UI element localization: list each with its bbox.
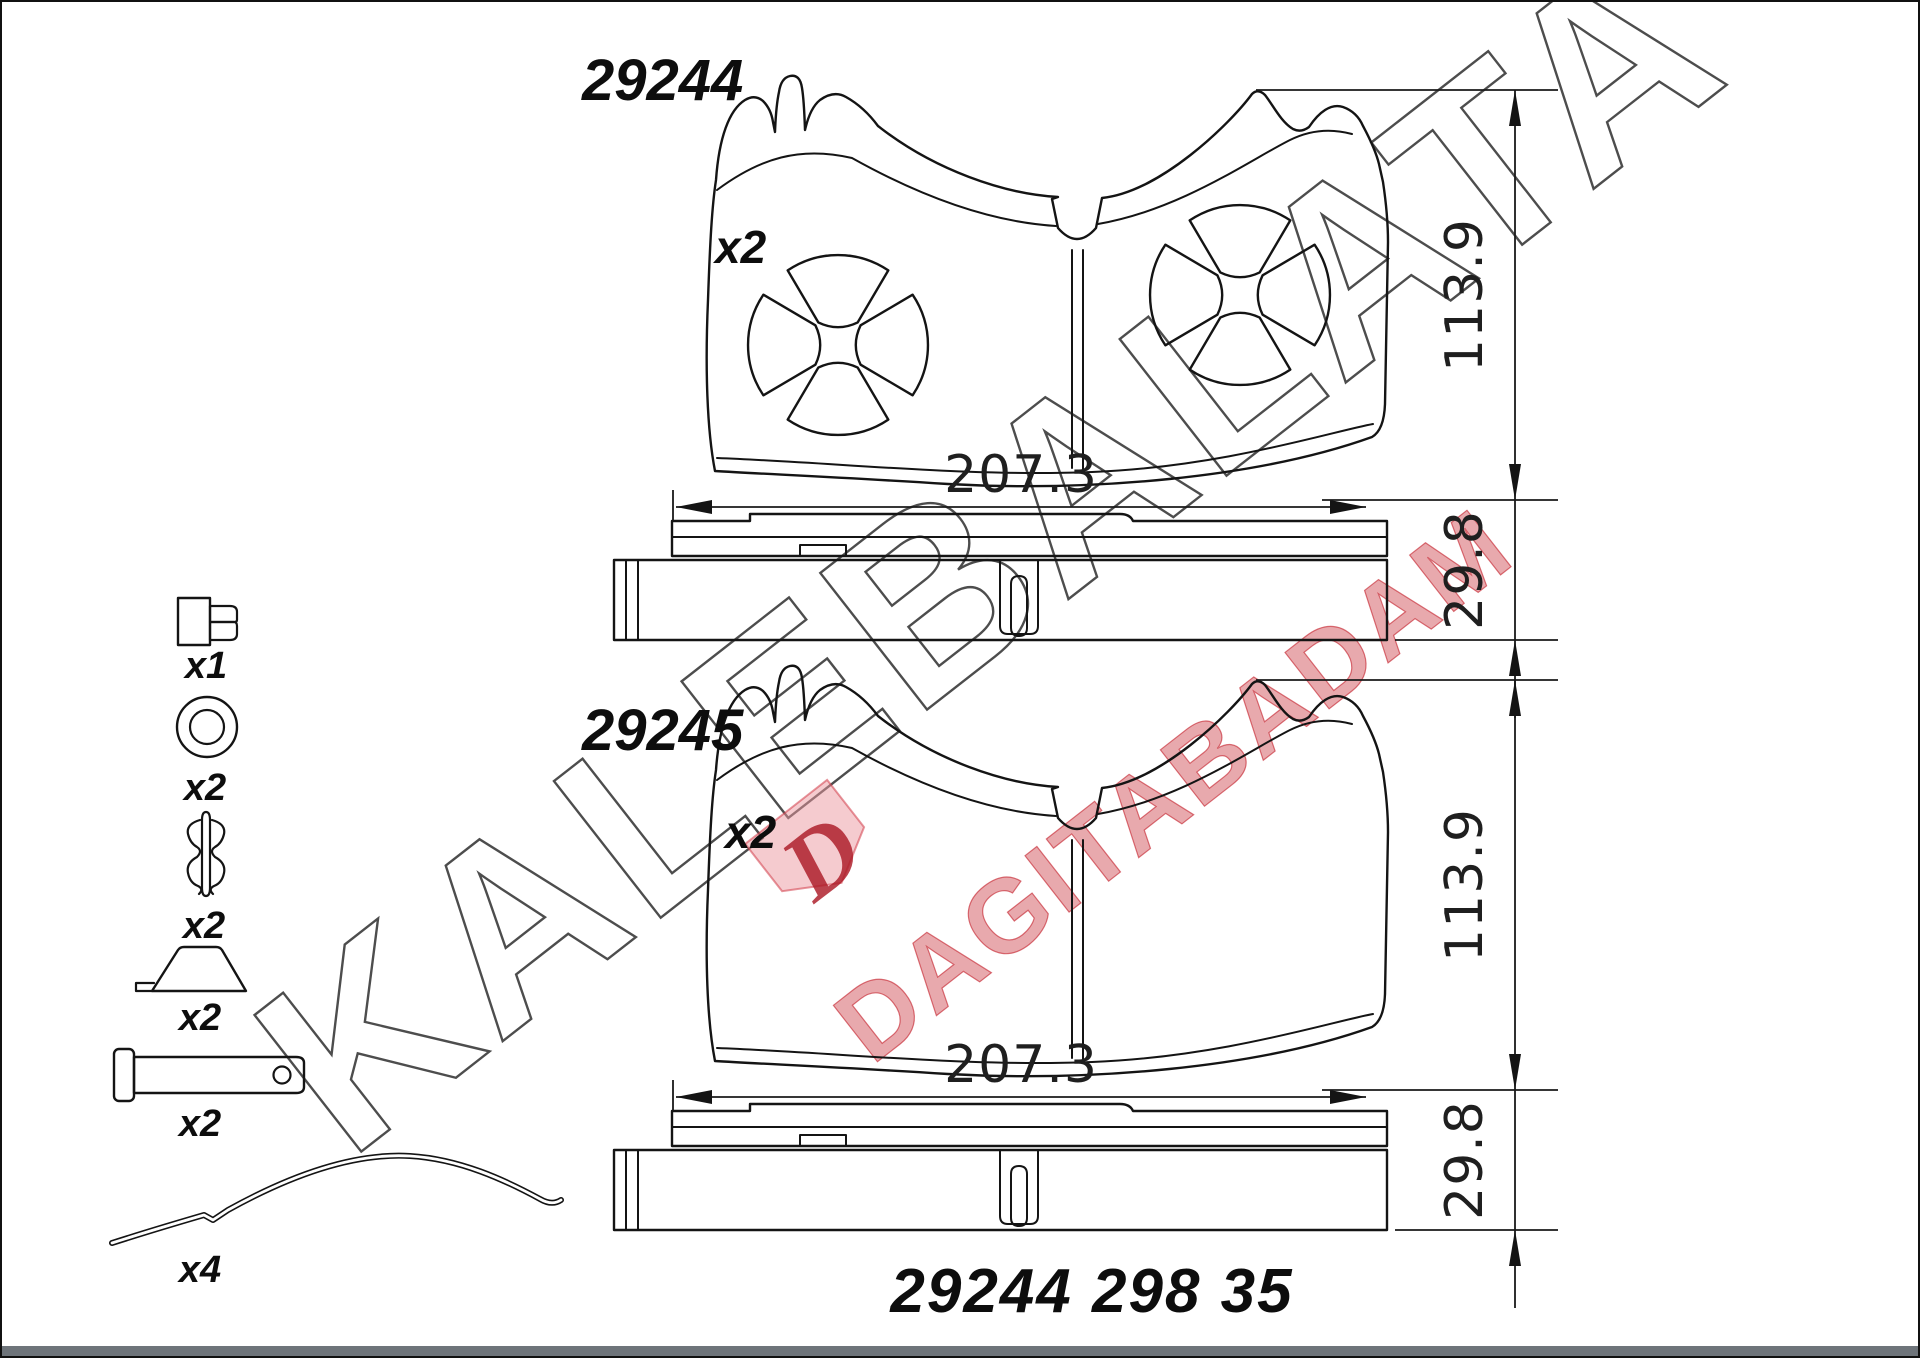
spring-quantity: x4: [177, 1249, 221, 1291]
pin-quantity: x2: [177, 1103, 221, 1145]
retainer-spring-icon: [112, 1156, 561, 1243]
height-dimension-2: 113.9: [1435, 808, 1495, 962]
height-dimension-1: 113.9: [1435, 218, 1495, 372]
wedge-quantity: x2: [177, 997, 221, 1039]
thickness-dimension-1: 29.8: [1435, 510, 1495, 630]
pad-quantity-label-2: x2: [722, 806, 777, 858]
pad-quantity-label-1: x2: [712, 221, 767, 273]
washer-quantity: x2: [182, 767, 226, 809]
width-dimension-2: 207.3: [944, 1035, 1098, 1095]
width-dimension-1: 207.3: [944, 445, 1098, 505]
brand-watermark: KALEBALATA: [208, 0, 1771, 1205]
mounting-bolt-icon: [178, 598, 237, 645]
clip-quantity: x2: [181, 905, 225, 947]
retaining-clip-icon: [188, 812, 225, 896]
bolt-quantity: x1: [183, 645, 227, 687]
part-number-label-2: 29245: [581, 698, 744, 763]
brake-pad-technical-drawing: KALEBALATA DAGITABADAM D 29244 x2 207.3 …: [0, 0, 1920, 1358]
set-reference-code: 29244 298 35: [889, 1257, 1293, 1326]
clevis-pin-icon: [114, 1049, 304, 1101]
brake-pad-catalog-page: KALEBALATA DAGITABADAM D 29244 x2 207.3 …: [0, 0, 1920, 1358]
part-number-label-1: 29244: [581, 48, 743, 113]
washer-icon: [177, 697, 237, 757]
thickness-dimension-2: 29.8: [1435, 1100, 1495, 1220]
